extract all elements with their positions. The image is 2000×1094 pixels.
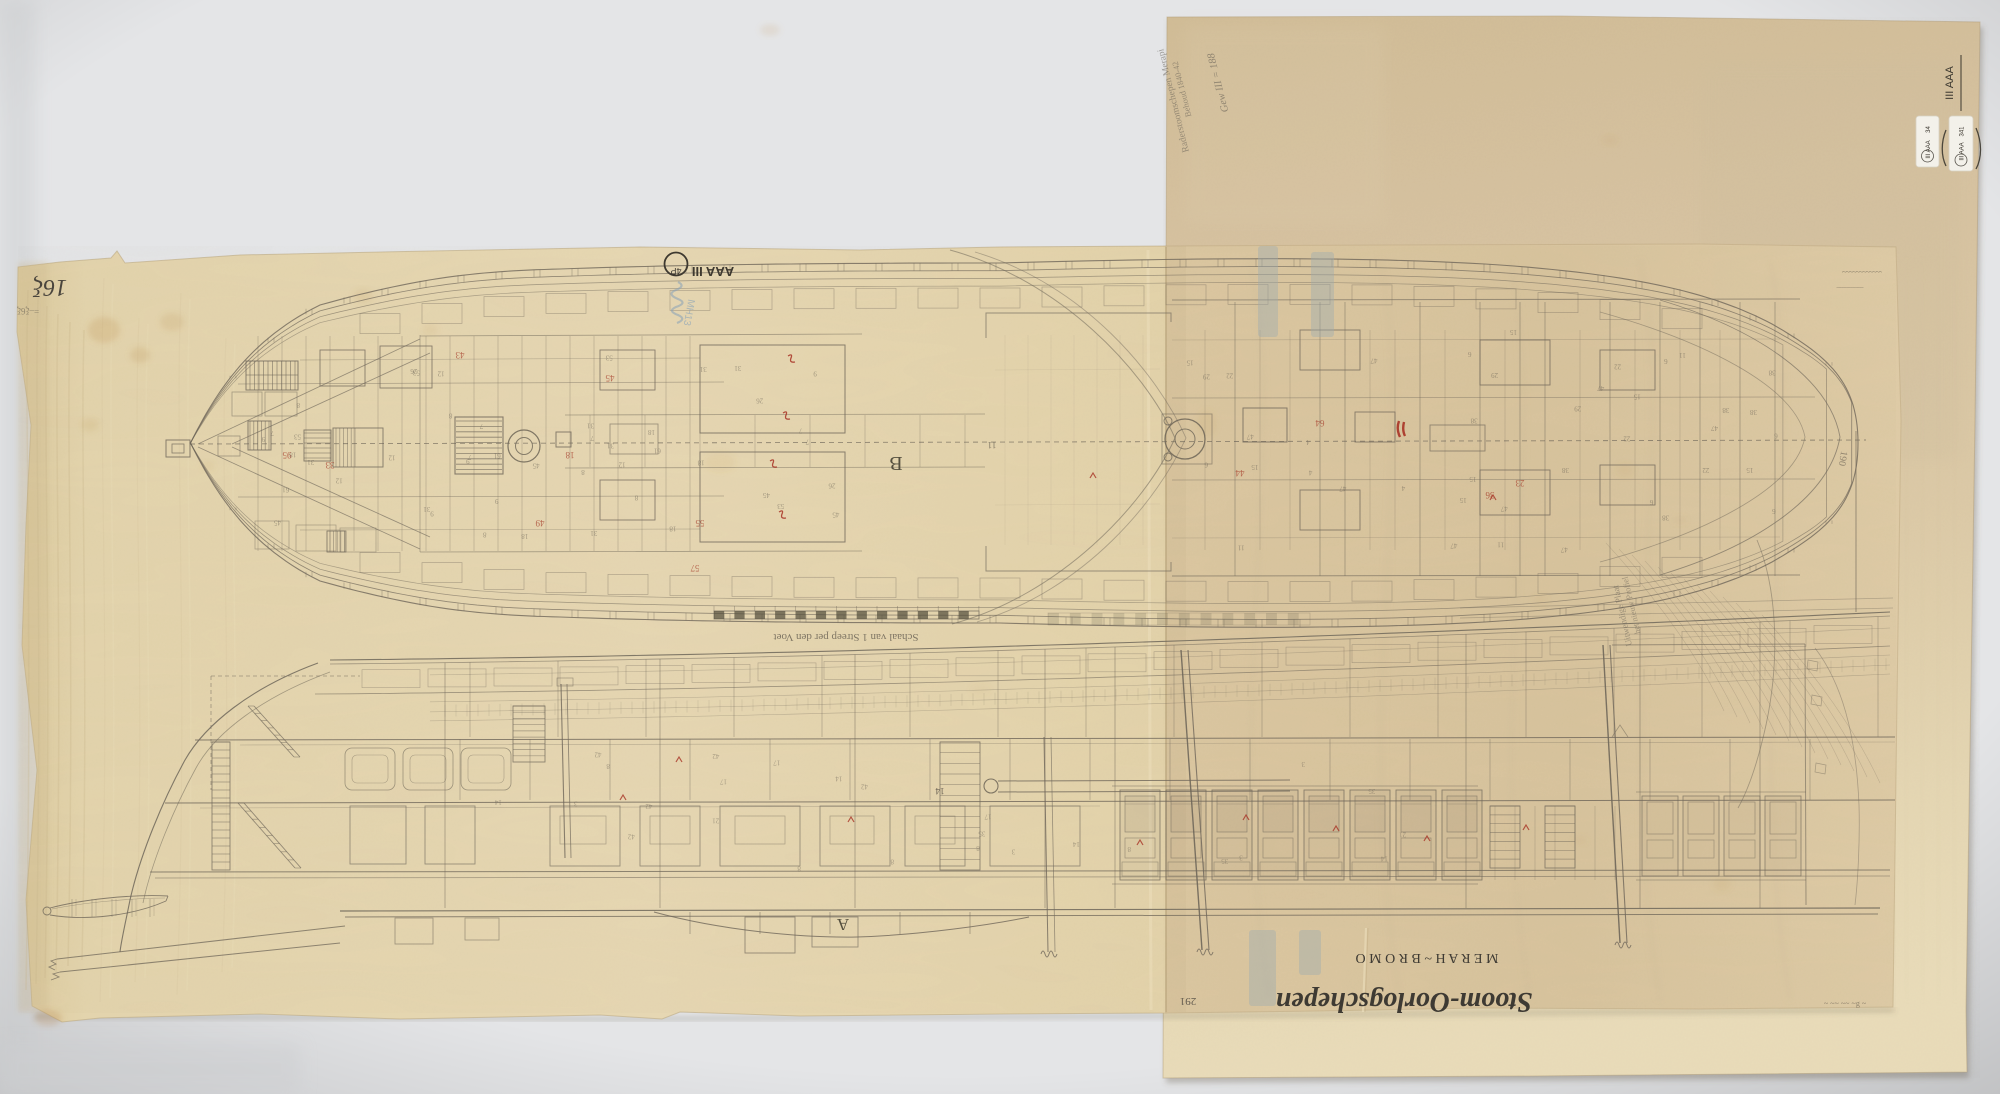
svg-text:35: 35 — [978, 830, 986, 838]
svg-text:61: 61 — [493, 452, 501, 460]
svg-text:6: 6 — [1664, 357, 1668, 365]
svg-text:45: 45 — [832, 511, 840, 519]
svg-text:3: 3 — [1301, 760, 1305, 768]
svg-text:6: 6 — [1649, 498, 1653, 506]
svg-text:44: 44 — [1235, 468, 1245, 478]
svg-text:15: 15 — [1633, 392, 1641, 400]
svg-text:6: 6 — [1204, 461, 1208, 469]
svg-text:42: 42 — [627, 833, 635, 841]
svg-text:47: 47 — [1560, 546, 1568, 554]
svg-text:9: 9 — [813, 370, 817, 378]
svg-text:4: 4 — [1306, 438, 1310, 446]
svg-text:8: 8 — [976, 844, 980, 852]
svg-text:M E R A H ~ B R O M O: M E R A H ~ B R O M O — [1356, 950, 1499, 965]
svg-text:17: 17 — [773, 758, 781, 766]
svg-text:8: 8 — [483, 531, 487, 539]
svg-text:18: 18 — [289, 451, 297, 459]
svg-text:47: 47 — [1370, 357, 1378, 365]
svg-text:9: 9 — [494, 497, 498, 505]
svg-text:38: 38 — [1562, 466, 1570, 474]
svg-text:12: 12 — [618, 460, 626, 468]
svg-text:4: 4 — [1308, 468, 1312, 476]
svg-text:11: 11 — [1497, 541, 1504, 549]
svg-text:49: 49 — [535, 518, 545, 528]
svg-text:38: 38 — [1662, 514, 1670, 522]
svg-text:18: 18 — [697, 458, 705, 466]
svg-text:6: 6 — [1774, 432, 1778, 440]
svg-text:55: 55 — [695, 518, 705, 528]
svg-text:45: 45 — [532, 462, 540, 470]
svg-text:8: 8 — [296, 401, 300, 409]
svg-text:53: 53 — [605, 353, 613, 361]
svg-text:29: 29 — [1203, 373, 1211, 381]
svg-text:8: 8 — [581, 468, 585, 476]
svg-text:47: 47 — [1246, 433, 1254, 441]
svg-text:15: 15 — [1469, 475, 1477, 483]
svg-text:42: 42 — [861, 782, 869, 790]
svg-text:17: 17 — [720, 778, 728, 786]
svg-text:38: 38 — [1768, 368, 1776, 376]
svg-text:﹏﹏﹏: ﹏﹏﹏ — [1836, 286, 1863, 296]
svg-text:31: 31 — [586, 421, 594, 429]
svg-text:45: 45 — [273, 518, 281, 526]
svg-text:III AAA: III AAA — [1960, 142, 1966, 160]
svg-text:A: A — [836, 915, 849, 934]
svg-text:12: 12 — [335, 476, 343, 484]
svg-text:8: 8 — [606, 762, 610, 770]
svg-text:22: 22 — [1623, 435, 1631, 443]
svg-text:21: 21 — [712, 816, 720, 824]
svg-text:31: 31 — [699, 365, 707, 373]
svg-text:15: 15 — [1459, 496, 1467, 504]
svg-text:22: 22 — [1614, 363, 1622, 371]
svg-text:﹏﹏﹏﹏: ﹏﹏﹏﹏ — [1842, 269, 1882, 280]
svg-text:42: 42 — [712, 752, 720, 760]
svg-text:53: 53 — [777, 502, 785, 510]
svg-text:III AAA: III AAA — [1944, 66, 1956, 100]
svg-text:31: 31 — [423, 505, 431, 513]
svg-text:12: 12 — [388, 454, 396, 462]
svg-text:38: 38 — [1722, 406, 1730, 414]
svg-text:AAA III: AAA III — [692, 264, 734, 279]
svg-text:61: 61 — [653, 446, 661, 454]
svg-text:47: 47 — [1597, 384, 1605, 392]
svg-text:18: 18 — [647, 428, 655, 436]
svg-text:III AAA: III AAA — [1926, 140, 1932, 158]
svg-text:57: 57 — [690, 563, 700, 573]
svg-text:18: 18 — [521, 532, 529, 540]
svg-text:22: 22 — [1226, 372, 1234, 380]
svg-text:4P: 4P — [670, 266, 681, 276]
svg-text:7: 7 — [590, 434, 594, 442]
svg-text:47: 47 — [1339, 484, 1347, 492]
svg-text:9: 9 — [466, 457, 470, 465]
svg-text:6: 6 — [1772, 507, 1776, 515]
svg-text:291: 291 — [1180, 995, 1197, 1007]
svg-text:B: B — [889, 452, 902, 474]
svg-text:6: 6 — [1467, 350, 1471, 358]
svg-text:38: 38 — [1749, 408, 1757, 416]
svg-text:12: 12 — [437, 370, 445, 378]
svg-text:29: 29 — [1574, 405, 1582, 413]
svg-text:34: 34 — [1926, 126, 1932, 133]
svg-text:47: 47 — [1500, 505, 1508, 513]
svg-text:45: 45 — [605, 373, 615, 383]
svg-text:15: 15 — [1251, 463, 1259, 471]
svg-text:~ ~~ ~~ ~g ~: ~ ~~ ~~ ~g ~ — [1824, 999, 1867, 1008]
svg-text:7: 7 — [805, 438, 809, 446]
svg-text:8: 8 — [890, 858, 894, 866]
svg-text:16ξ: 16ξ — [32, 274, 67, 300]
svg-text:42: 42 — [594, 751, 602, 759]
svg-text:4: 4 — [1401, 484, 1405, 492]
svg-text:14: 14 — [1072, 840, 1080, 848]
svg-text:33: 33 — [325, 460, 335, 470]
svg-text:8: 8 — [448, 412, 452, 420]
svg-text:7: 7 — [270, 429, 274, 437]
svg-text:61: 61 — [282, 485, 290, 493]
svg-text:29: 29 — [1491, 371, 1499, 379]
svg-text:31: 31 — [590, 529, 598, 537]
svg-text:31: 31 — [307, 458, 315, 466]
svg-text:3: 3 — [1011, 847, 1015, 855]
svg-text:31: 31 — [606, 442, 614, 450]
svg-text:11: 11 — [1679, 351, 1686, 359]
svg-text:18: 18 — [669, 524, 677, 532]
svg-text:Stoom-Oorlogschepen: Stoom-Oorlogschepen — [1276, 986, 1533, 1017]
svg-text:341: 341 — [1960, 126, 1966, 137]
svg-text:26: 26 — [828, 481, 836, 489]
svg-text:7: 7 — [798, 427, 802, 435]
svg-text:53: 53 — [294, 432, 302, 440]
svg-text:Schaal van 1 Streep per den Vo: Schaal van 1 Streep per den Voet — [774, 631, 919, 643]
svg-text:47: 47 — [1711, 424, 1719, 432]
svg-text:18: 18 — [565, 450, 575, 460]
svg-text:15: 15 — [1746, 466, 1754, 474]
svg-text:15: 15 — [1509, 328, 1517, 336]
svg-text:14: 14 — [835, 775, 843, 783]
svg-text:9: 9 — [261, 435, 265, 443]
svg-text:53: 53 — [412, 369, 420, 377]
svg-text:15: 15 — [1186, 358, 1194, 366]
svg-text:47: 47 — [1450, 541, 1458, 549]
svg-text:11: 11 — [988, 440, 997, 450]
svg-text:38: 38 — [1470, 416, 1478, 424]
svg-text:45: 45 — [762, 491, 770, 499]
svg-text:7: 7 — [479, 422, 483, 430]
svg-text:8: 8 — [634, 493, 638, 501]
svg-text:11: 11 — [1237, 543, 1244, 551]
svg-text:=–ξ6ξ: =–ξ6ξ — [17, 306, 39, 316]
svg-text:26: 26 — [756, 396, 764, 404]
svg-text:14: 14 — [935, 786, 945, 796]
svg-text:22: 22 — [1702, 466, 1710, 474]
svg-text:43: 43 — [455, 350, 465, 360]
svg-text:31: 31 — [734, 364, 742, 372]
